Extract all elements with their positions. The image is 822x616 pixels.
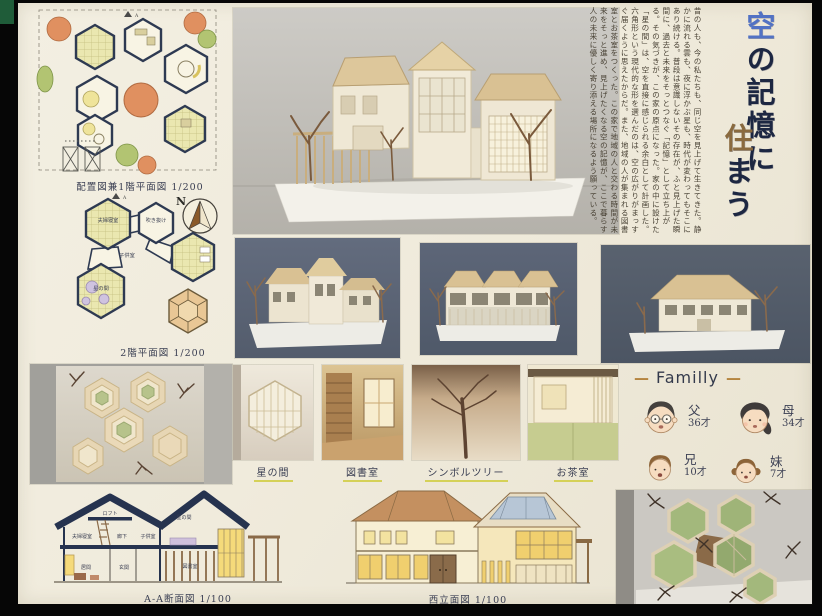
family-member-sister: 妹 7才 [726,448,786,488]
svg-text:子供室: 子供室 [119,251,135,259]
title-char: の [742,44,776,77]
elevation-right-wing [576,539,592,583]
detail-photo-tea-room [528,365,618,460]
father-illustration [638,394,684,440]
title-char: 空 [742,11,776,44]
model-photo-angle-view [235,238,400,358]
family-role: 父 [688,404,711,418]
section-window [65,555,74,575]
family-panel: — Familly — 父 36才 [630,366,822,488]
title-char: う [720,189,754,222]
west-elevation-drawing [340,481,597,591]
section-cut-marker: A [124,11,139,19]
brother-illustration [640,446,680,486]
model-base [629,330,785,352]
north-compass: N [176,195,217,233]
svg-text:居間: 居間 [81,565,91,571]
poster-title-sub: 住まう [716,123,758,233]
family-header-dash: — [634,369,649,387]
section-cut-marker-2f: A [112,193,127,201]
svg-text:子供室: 子供室 [140,533,155,540]
section-drawing: ロフト 夫婦寝室 廊下 子供室 星の間 居間 玄関 図書室 [50,485,285,589]
detail-caption-star-room: 星の間 [233,464,313,479]
elevation-entrance-door [430,555,456,583]
family-member-mother: 母 34才 [732,394,805,440]
detail-photo-symbol-tree [412,365,520,460]
star-room-tall-window [218,529,244,577]
svg-text:N: N [176,195,186,208]
family-age: 34才 [782,418,805,430]
sister-illustration [726,448,766,488]
svg-text:夫婦寝室: 夫婦寝室 [72,533,92,540]
svg-text:星の間: 星の間 [93,285,109,292]
detail-photo-star-room [233,365,313,460]
svg-text:A: A [122,195,127,201]
detail-caption-tea-room: お茶室 [528,464,618,479]
family-header-dash: — [726,369,741,387]
section-caption: A-A断面図 1/100 [118,591,258,605]
model-photo-single-volume [601,245,810,363]
detail-photo-library [322,365,403,460]
title-char: 記 [742,77,776,110]
section-ladder [97,520,110,545]
svg-text:玄関: 玄関 [119,564,129,571]
aerial-model-photo [616,490,812,604]
svg-text:ロフト: ロフト [102,511,117,517]
west-elevation-caption: 西立面図 1/100 [403,592,533,606]
family-age: 36才 [688,418,711,430]
house-center-tower [409,42,475,178]
family-header: — Familly — [634,368,741,387]
family-role: 母 [782,404,805,418]
detail-caption-symbol-tree: シンボルツリー [412,464,520,479]
section-furniture [74,538,196,580]
site-plan-drawing: A [35,7,221,177]
model-base [436,325,560,341]
elevation-left-volume [352,491,484,583]
main-model-illustration [233,8,619,234]
detail-caption-library: 図書室 [322,464,403,479]
svg-text:夫婦寝室: 夫婦寝室 [98,216,119,224]
family-member-father: 父 36才 [638,394,711,440]
scan-edge-artifact [0,0,14,24]
title-char: ま [720,156,754,189]
svg-text:吹き抜け: 吹き抜け [146,216,167,224]
family-header-label: Familly [656,368,719,387]
model-house [444,271,558,325]
tea-room-roof-hexagon [169,289,207,333]
svg-text:図書室: 図書室 [182,563,197,570]
house-right-tower [471,74,561,180]
title-char: 住 [720,123,754,156]
hexagon-pods-photo [30,364,232,484]
board-paper: A [18,3,812,604]
family-age: 10才 [684,467,707,479]
family-member-brother: 兄 10才 [640,446,707,486]
family-age: 7才 [770,469,786,481]
mother-illustration [732,394,778,440]
main-model-photo [233,8,619,234]
second-floor-plan-caption: 2階平面図 1/200 [98,345,228,359]
family-role: 妹 [770,455,786,469]
second-floor-plan-drawing: N A [28,189,223,341]
svg-text:廊下: 廊下 [117,533,127,540]
svg-text:星の間: 星の間 [176,515,191,521]
engawa-extension [248,537,280,581]
svg-text:A: A [134,13,139,19]
elevation-right-volume [474,493,580,583]
model-photo-front-view [420,243,577,355]
family-role: 兄 [684,453,707,467]
concept-text: 昔の人も、今の私たちも、同じ空を見上げて生きてきた。静かに流れる雲も、夜に浮かぶ… [586,7,702,239]
scanned-presentation-board: A [0,0,822,616]
